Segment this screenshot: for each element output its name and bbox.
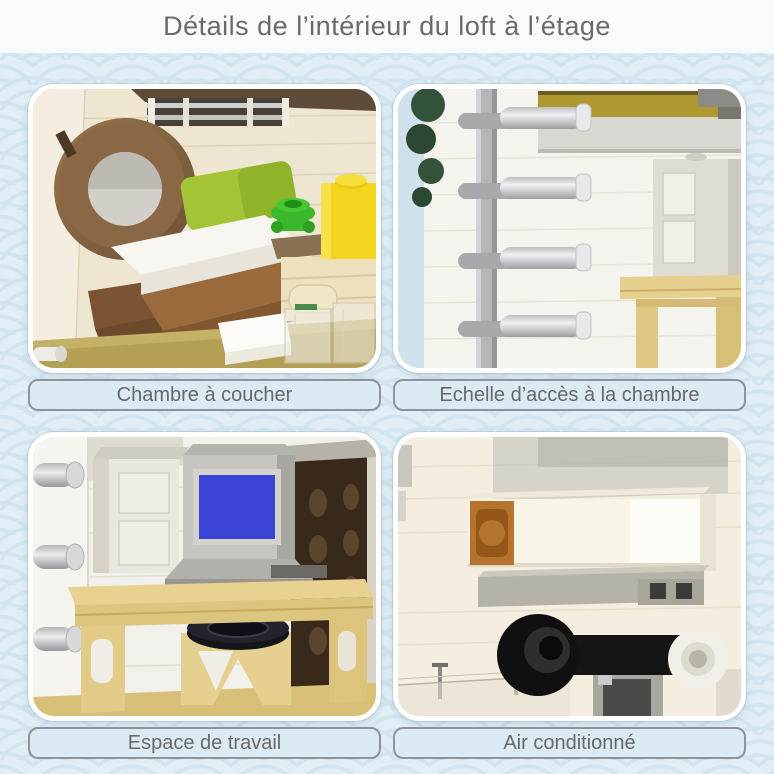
panel-air-conditioning: Air conditionné (393, 432, 746, 759)
caption-ladder: Echelle d’accès à la chambre (393, 379, 746, 411)
ladder-photo (393, 84, 746, 373)
page-title: Détails de l’intérieur du loft à l’étage (163, 11, 611, 42)
white-cylinder (668, 629, 728, 689)
amber-brick (470, 501, 514, 565)
yellow-brick (321, 174, 376, 259)
caption-air-conditioning: Air conditionné (393, 727, 746, 759)
page-header: Détails de l’intérieur du loft à l’étage (0, 0, 774, 53)
caption-workspace-label: Espace de travail (128, 732, 281, 755)
air-conditioning-photo (393, 432, 746, 721)
wall-fitting (398, 445, 412, 487)
caption-ladder-label: Echelle d’accès à la chambre (439, 384, 699, 407)
panel-ladder: Echelle d’accès à la chambre (393, 84, 746, 411)
vent-shelf (478, 565, 710, 607)
product-detail-page: Détails de l’intérieur du loft à l’étage (0, 0, 774, 774)
white-cabinet (93, 447, 189, 573)
ac-unit (468, 487, 716, 571)
fan-wheel (497, 614, 579, 696)
bedroom-illustration (33, 89, 376, 368)
workspace-illustration (33, 437, 376, 716)
white-cylinder-piece (33, 346, 67, 362)
workspace-photo (28, 432, 381, 721)
air-conditioning-illustration (398, 437, 741, 716)
panel-bedroom: Chambre à coucher (28, 84, 381, 411)
caption-workspace: Espace de travail (28, 727, 381, 759)
wall-grate-window (147, 98, 289, 126)
bedroom-photo (28, 84, 381, 373)
flower-piece (271, 198, 315, 233)
caption-bedroom: Chambre à coucher (28, 379, 381, 411)
ladder-illustration (398, 89, 741, 368)
caption-air-conditioning-label: Air conditionné (503, 732, 635, 755)
caption-bedroom-label: Chambre à coucher (117, 384, 293, 407)
photo-grid: Chambre à coucher (28, 84, 746, 759)
monitor-screen (199, 475, 275, 539)
panel-workspace: Espace de travail (28, 432, 381, 759)
wall-cabinet (653, 153, 741, 277)
